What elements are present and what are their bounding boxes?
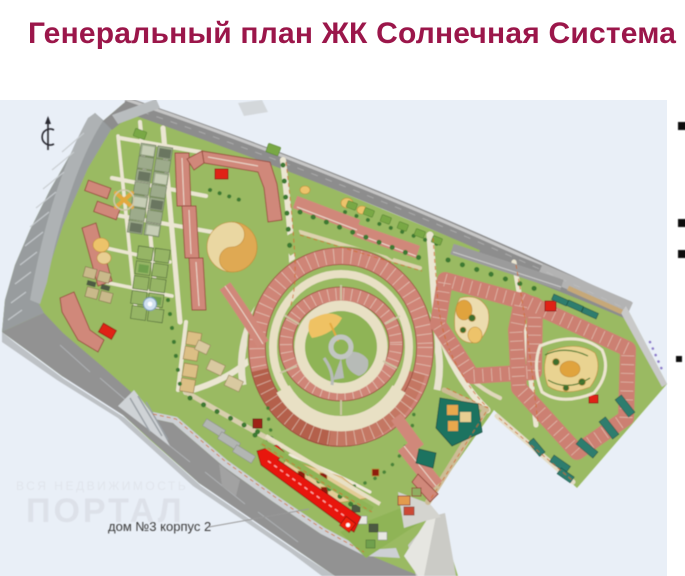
- svg-text:ВСЯ НЕДВИЖИМОСТЬ: ВСЯ НЕДВИЖИМОСТЬ: [16, 479, 188, 493]
- svg-text:дом №3 корпус 2: дом №3 корпус 2: [108, 519, 211, 534]
